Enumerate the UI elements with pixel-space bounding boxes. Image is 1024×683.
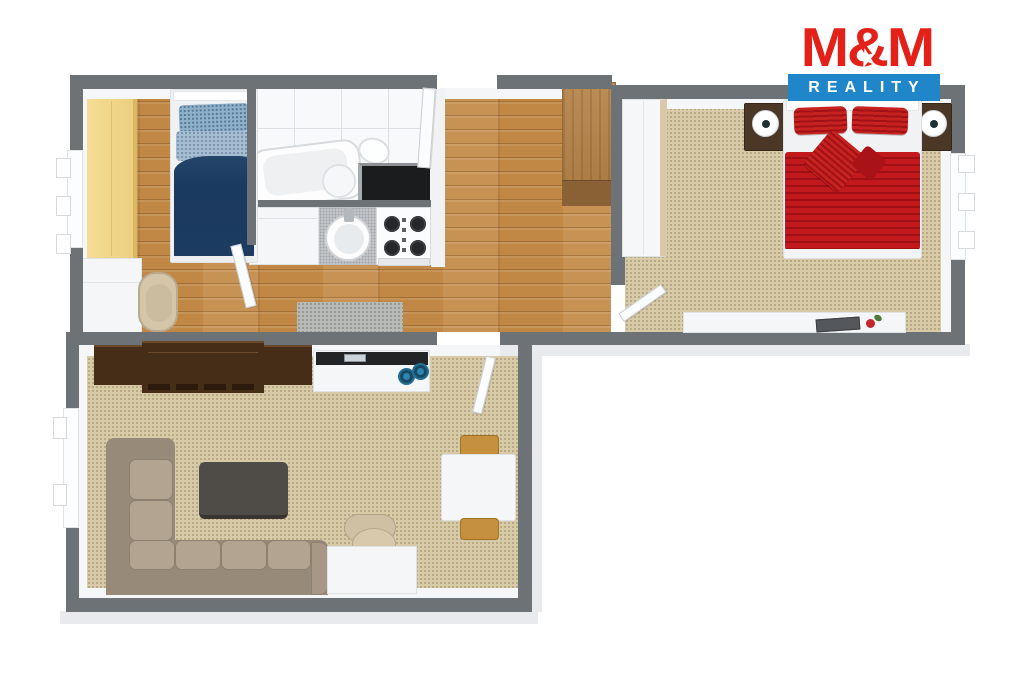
media-unit-drawers [148,384,258,390]
window-casement [56,158,71,178]
wall-face-living-left [79,345,87,598]
wall-left-upper-a [70,75,83,153]
double-bed-footboard [785,249,920,257]
agency-logo: M&M ★ REALITY [788,22,946,102]
single-bed-pillow [179,103,250,133]
wall-top-left [70,75,437,89]
bathroom-dark-counter [358,163,430,202]
window-casement [958,193,975,211]
wall-bedroom-right-a [951,85,965,155]
dining-chair-bottom [460,518,499,540]
wall-top-mid [497,75,612,89]
floor-plan-render: M&M ★ REALITY [0,0,1024,683]
bedroom-white-wardrobe [622,99,667,257]
living-desk [327,546,417,594]
bedroom-wardrobe-door-line [643,101,644,255]
sofa-cushion [129,540,175,570]
wall-bevel-living-bottom [60,611,538,624]
media-unit-shelf-line [148,352,258,353]
flower-red [866,319,875,328]
logo-tagline-band: REALITY [788,74,940,101]
sofa-cushion [267,540,311,570]
lamp-core [762,120,770,128]
wall-bedroom-bottom [611,332,965,345]
window-casement [56,196,71,216]
wall-living-bottom [66,598,532,612]
sofa-cushion [129,459,173,500]
wall-bathroom-bottom [247,200,439,207]
blue-bowl [412,363,429,380]
wall-kids-door-stub [247,207,256,245]
double-bed-pillow-left [794,106,848,135]
bathtub-seat [322,164,356,198]
media-unit-left-cabinet [94,345,142,385]
hall-door-mat [297,302,403,332]
double-bed-pillow-right [852,106,909,135]
hall-wardrobe-drawers [562,180,616,206]
stove-knobs [402,218,406,254]
wall-left-upper-b [70,245,83,345]
kids-white-dresser [79,258,142,335]
window-casement [53,417,67,439]
hifi-display [344,354,366,362]
kitchen-cabinet-line [251,218,317,219]
kids-chair-seat [146,284,172,322]
wall-living-right [518,332,532,612]
wall-bevel-living-right [531,350,542,612]
sofa-right-armrest [311,542,328,595]
yellow-wardrobe [87,99,137,258]
wall-living-left-a [66,332,79,410]
dining-table [441,454,516,521]
window-casement [53,484,67,506]
window-casement [56,234,71,254]
yellow-wardrobe-door-line [111,101,112,256]
hifi-system [316,352,428,365]
coffee-table [199,462,288,519]
stove-drawer [378,258,430,266]
media-unit-right-cabinet [264,345,312,385]
window-casement [958,155,975,173]
stove-burner [410,216,426,232]
sofa-cushion [129,500,173,541]
lamp-core [930,120,938,128]
wall-kids-bath-divider [247,88,256,210]
stove-burner [410,240,426,256]
kitchen-sink-basin [334,224,364,254]
window-casement [958,231,975,249]
single-bed-duvet [174,156,254,258]
stove-burner [384,240,400,256]
wall-bevel-bedroom-bottom [500,344,970,356]
stove-burner [384,216,400,232]
dresser-line [81,282,140,283]
sofa-cushion [221,540,267,570]
single-bed-headboard [173,91,255,101]
sofa-cushion [175,540,221,570]
kitchen-faucet [344,208,354,222]
kitchen-white-cabinet [249,207,319,265]
